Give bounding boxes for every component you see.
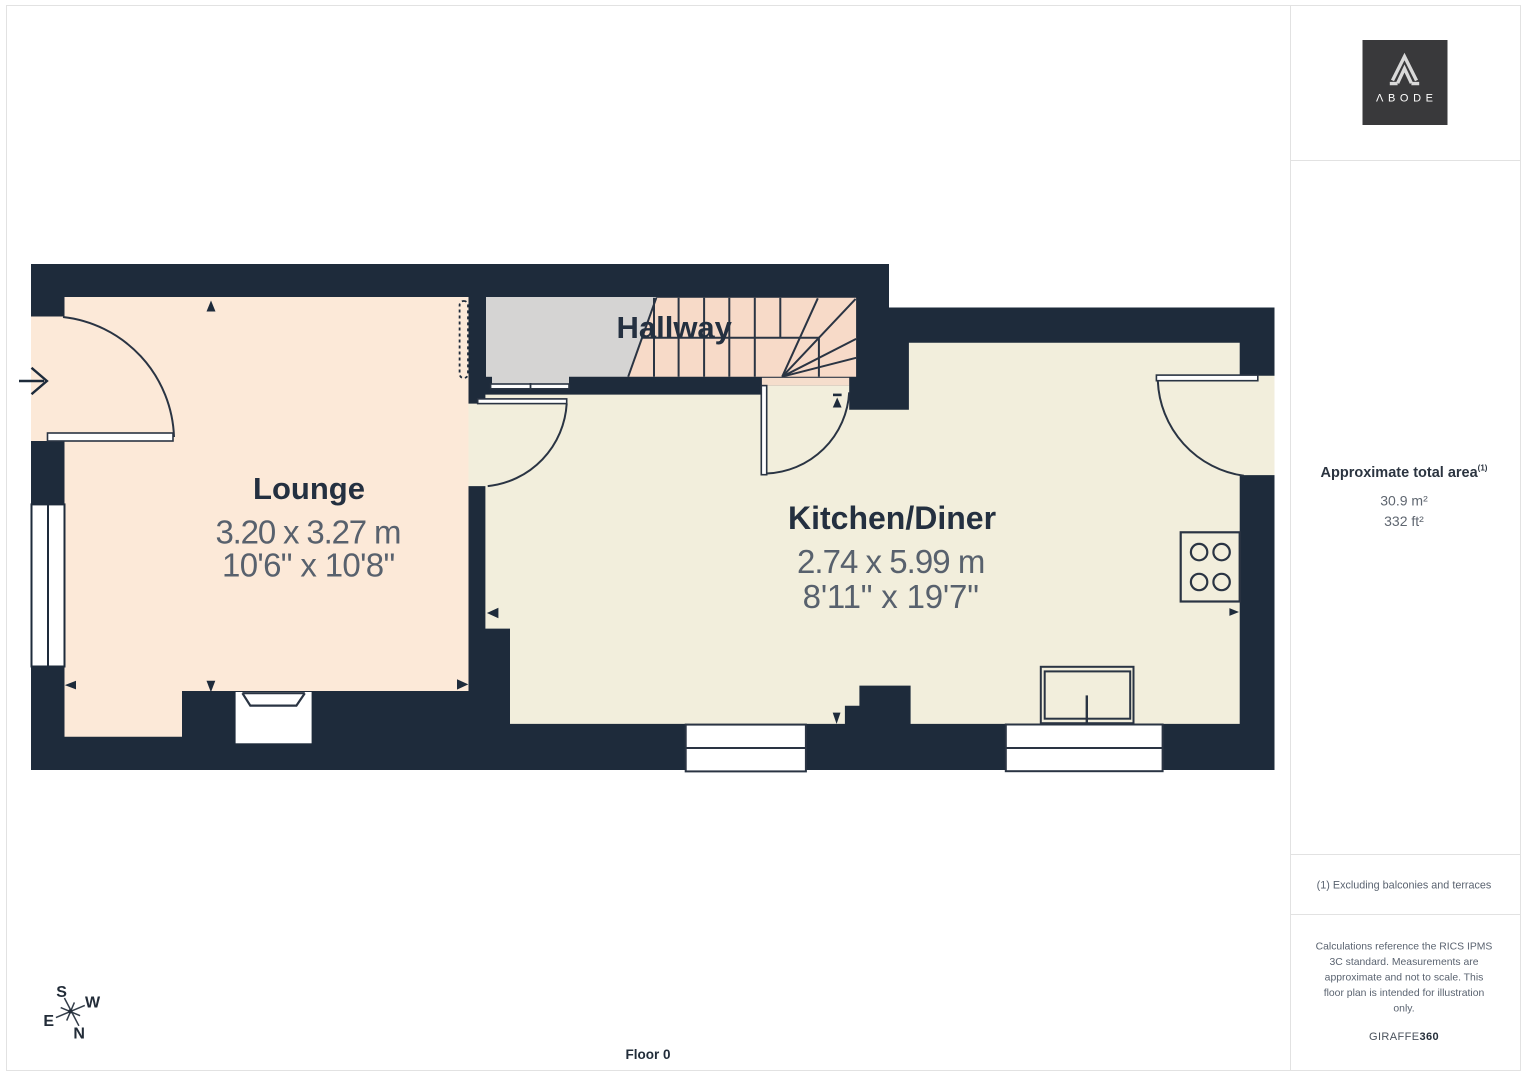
svg-text:E: E (43, 1013, 54, 1030)
svg-text:Lounge: Lounge (253, 471, 365, 506)
svg-text:3C standard. Measurements are: 3C standard. Measurements are (1329, 957, 1478, 968)
svg-text:3.20 x 3.27 m: 3.20 x 3.27 m (215, 514, 400, 551)
svg-text:W: W (85, 995, 101, 1012)
svg-text:floor plan is intended for ill: floor plan is intended for illustration (1324, 988, 1485, 999)
svg-text:Approximate total area(1): Approximate total area(1) (1321, 464, 1488, 482)
svg-text:Hallway: Hallway (616, 310, 732, 345)
svg-text:10'6" x 10'8": 10'6" x 10'8" (222, 547, 395, 584)
svg-text:N: N (73, 1026, 85, 1043)
svg-text:(1) Excluding balconies and te: (1) Excluding balconies and terraces (1317, 880, 1492, 892)
svg-text:Kitchen/Diner: Kitchen/Diner (788, 500, 996, 536)
svg-text:332 ft²: 332 ft² (1384, 513, 1424, 529)
svg-text:Floor 0: Floor 0 (625, 1047, 670, 1062)
svg-text:2.74 x 5.99 m: 2.74 x 5.99 m (797, 543, 984, 580)
svg-text:Calculations reference the RIC: Calculations reference the RICS IPMS (1316, 942, 1493, 953)
svg-text:GIRAFFE360: GIRAFFE360 (1369, 1031, 1439, 1043)
svg-text:only.: only. (1393, 1004, 1414, 1015)
svg-text:ΛBODE: ΛBODE (1376, 93, 1438, 105)
svg-text:8'11" x 19'7": 8'11" x 19'7" (803, 578, 979, 615)
svg-text:30.9 m²: 30.9 m² (1380, 493, 1428, 509)
svg-text:approximate and not to scale.: approximate and not to scale. This (1325, 973, 1484, 984)
svg-text:S: S (56, 984, 67, 1001)
